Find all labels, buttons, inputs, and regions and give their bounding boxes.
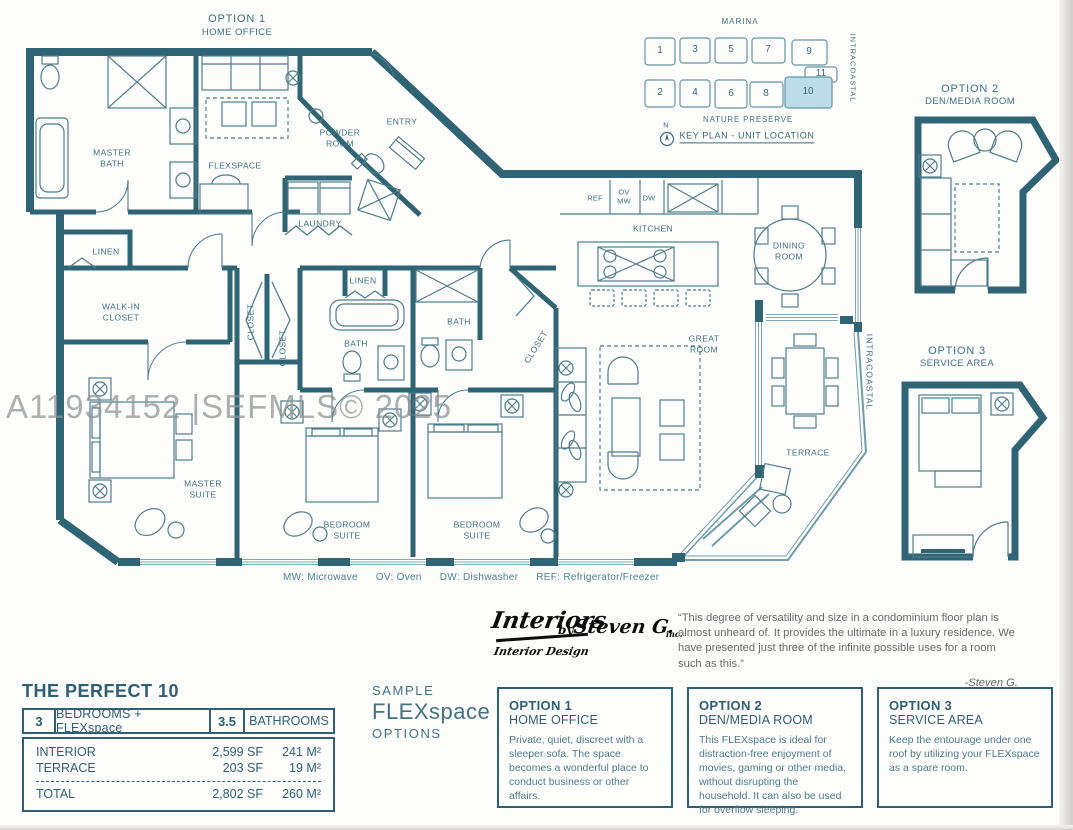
appliance-label-ov-mw: OV MW bbox=[617, 188, 631, 207]
option3-plan-drawing bbox=[893, 345, 1065, 571]
keyplan-unit-9: 9 bbox=[806, 46, 812, 59]
option2-box-body: This FLEXspace is ideal for distraction-… bbox=[699, 734, 851, 818]
option3-box-subtitle: SERVICE AREA bbox=[889, 713, 1041, 727]
option1-plan-subtitle: HOME OFFICE bbox=[202, 27, 272, 39]
appliance-legend: MW: Microwave OV: Oven DW: Dishwasher RE… bbox=[283, 572, 659, 583]
unit-name-title: THE PERFECT 10 bbox=[22, 681, 179, 702]
room-label-powder-room: POWDER ROOM bbox=[320, 127, 361, 148]
keyplan-unit-4: 4 bbox=[692, 87, 698, 100]
room-label-bath-2: BATH bbox=[447, 317, 471, 328]
room-label-closet-1: CLOSET bbox=[246, 304, 257, 340]
keyplan-unit-6: 6 bbox=[728, 88, 734, 101]
room-label-bath-1: BATH bbox=[344, 339, 368, 350]
room-label-great-room: GREAT ROOM bbox=[689, 333, 720, 354]
logo-tagline: Interior Design bbox=[493, 645, 591, 658]
room-label-laundry: LAUNDRY bbox=[298, 219, 341, 230]
keyplan-nature-preserve-label: NATURE PRESERVE bbox=[703, 115, 793, 125]
table-row-total: TOTAL 2,802 SF 260 M² bbox=[36, 787, 321, 803]
option2-box-title: OPTION 2 bbox=[699, 698, 851, 713]
table-row-terrace: TERRACE 203 SF 19 M² bbox=[36, 761, 321, 777]
room-label-walkin-closet: WALK-IN CLOSET bbox=[102, 301, 140, 322]
scan-edge-bottom bbox=[0, 825, 1073, 830]
keyplan-intracoastal-label: INTRACOASTAL bbox=[848, 34, 857, 103]
total-label: TOTAL bbox=[36, 787, 183, 803]
bathrooms-label: BATHROOMS bbox=[245, 710, 333, 732]
intracoastal-label-main: INTRACOASTAL bbox=[864, 334, 875, 411]
appliance-label-dw: DW bbox=[643, 193, 656, 202]
terrace-label: TERRACE bbox=[36, 761, 183, 777]
option1-box-subtitle: HOME OFFICE bbox=[509, 713, 661, 727]
keyplan-unit-7: 7 bbox=[765, 44, 771, 57]
bathrooms-count: 3.5 bbox=[211, 710, 245, 732]
interior-sf: 2,599 SF bbox=[183, 745, 263, 761]
option3-box-body: Keep the entourage under one roof by uti… bbox=[889, 734, 1041, 776]
summary-header-row: 3 BEDROOMS + FLEXspace 3.5 BATHROOMS bbox=[22, 708, 335, 734]
mls-watermark: A11934152 |SEFMLS© 2025 bbox=[6, 388, 452, 426]
keyplan-unit-2: 2 bbox=[657, 87, 663, 100]
logo-name2: Steven G. bbox=[572, 616, 675, 638]
option2-plan-drawing bbox=[893, 78, 1065, 304]
designer-quote: “This degree of versatility and size in … bbox=[678, 611, 1018, 691]
sample-line3: OPTIONS bbox=[372, 726, 490, 741]
floorplan-sheet: OPTION 1 HOME OFFICE MASTER BATH FLEXSPA… bbox=[0, 0, 1073, 830]
total-sf: 2,802 SF bbox=[183, 787, 263, 803]
table-divider bbox=[36, 781, 321, 782]
legend-item-ov: OV: Oven bbox=[376, 572, 422, 583]
terrace-m2: 19 M² bbox=[263, 761, 321, 777]
option2-description-box: OPTION 2 DEN/MEDIA ROOM This FLEXspace i… bbox=[687, 687, 863, 808]
sample-flexspace-options-heading: SAMPLE FLEXspace OPTIONS bbox=[372, 683, 490, 741]
room-label-linen-1: LINEN bbox=[92, 247, 119, 258]
option1-box-title: OPTION 1 bbox=[509, 698, 661, 713]
keyplan-unit-10-highlighted: 10 bbox=[802, 86, 813, 99]
room-label-terrace: TERRACE bbox=[786, 448, 829, 459]
total-m2: 260 M² bbox=[263, 787, 321, 803]
appliance-label-ref: REF bbox=[587, 193, 603, 202]
table-row-interior: INTERIOR 2,599 SF 241 M² bbox=[36, 745, 321, 761]
keyplan-unit-1: 1 bbox=[657, 45, 663, 58]
option3-description-box: OPTION 3 SERVICE AREA Keep the entourage… bbox=[877, 687, 1053, 808]
sample-line2: FLEXspace bbox=[372, 699, 490, 725]
summary-areas-table: INTERIOR 2,599 SF 241 M² TERRACE 203 SF … bbox=[22, 737, 335, 812]
room-label-bedroom-suite-2: BEDROOM SUITE bbox=[454, 519, 501, 540]
bedrooms-label: BEDROOMS + FLEXspace bbox=[56, 710, 211, 732]
keyplan-unit-5: 5 bbox=[728, 44, 734, 57]
room-label-master-bath: MASTER BATH bbox=[93, 147, 131, 168]
interiors-by-steven-g-logo: Interiors by Steven G. inc. Interior Des… bbox=[490, 607, 685, 665]
quote-text: “This degree of versatility and size in … bbox=[678, 611, 1018, 672]
scan-edge-right bbox=[1059, 0, 1073, 830]
keyplan-unit-3: 3 bbox=[692, 44, 698, 57]
option1-box-body: Private, quiet, discreet with a sleeper … bbox=[509, 734, 661, 804]
compass-icon bbox=[659, 131, 675, 147]
sample-line1: SAMPLE bbox=[372, 683, 490, 698]
keyplan-unit-8: 8 bbox=[763, 88, 769, 101]
room-label-flexspace: FLEXSPACE bbox=[208, 161, 261, 172]
legend-item-dw: DW: Dishwasher bbox=[440, 572, 518, 583]
legend-item-mw: MW: Microwave bbox=[283, 572, 358, 583]
keyplan-unit-11: 11 bbox=[816, 68, 826, 81]
room-label-linen-2: LINEN bbox=[349, 276, 376, 287]
logo-by: by bbox=[558, 623, 573, 637]
room-label-kitchen: KITCHEN bbox=[633, 224, 673, 235]
keyplan-caption: KEY PLAN - UNIT LOCATION bbox=[680, 130, 815, 143]
legend-item-ref: REF: Refrigerator/Freezer bbox=[536, 572, 659, 583]
bedrooms-count: 3 bbox=[24, 710, 56, 732]
furniture bbox=[36, 56, 838, 543]
interior-m2: 241 M² bbox=[263, 745, 321, 761]
option3-box-title: OPTION 3 bbox=[889, 698, 1041, 713]
room-label-bedroom-suite-1: BEDROOM SUITE bbox=[324, 519, 371, 540]
room-label-closet-2: CLOSET bbox=[278, 330, 289, 366]
room-label-dining-room: DINING ROOM bbox=[773, 240, 805, 261]
room-label-entry: ENTRY bbox=[387, 117, 418, 128]
option1-description-box: OPTION 1 HOME OFFICE Private, quiet, dis… bbox=[497, 687, 673, 808]
key-plan-drawing bbox=[643, 36, 863, 116]
option1-plan-title: OPTION 1 bbox=[208, 13, 266, 27]
interior-label: INTERIOR bbox=[36, 745, 183, 761]
terrace-sf: 203 SF bbox=[183, 761, 263, 777]
keyplan-marina-label: MARINA bbox=[721, 17, 758, 27]
option2-box-subtitle: DEN/MEDIA ROOM bbox=[699, 713, 851, 727]
outer-walls bbox=[30, 52, 858, 562]
room-label-master-suite: MASTER SUITE bbox=[184, 478, 222, 499]
